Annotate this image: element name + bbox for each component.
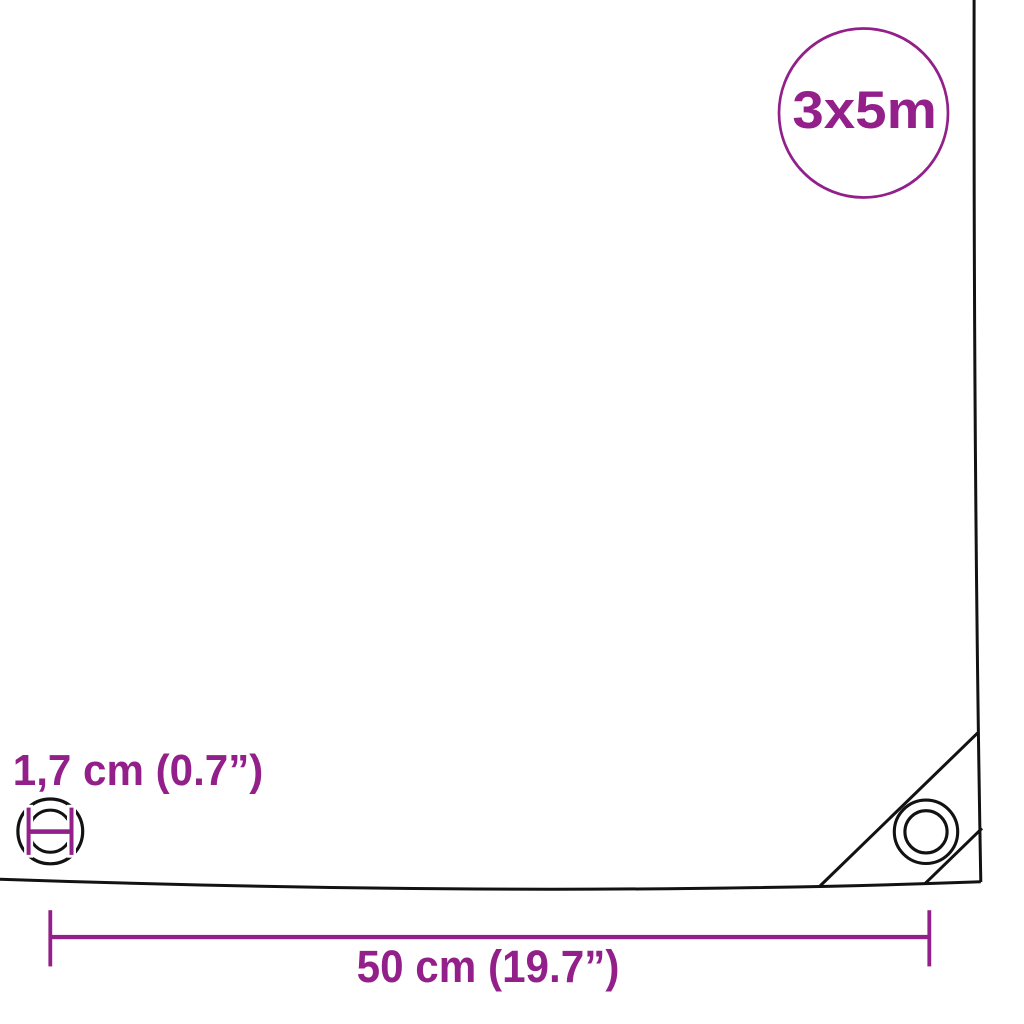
svg-text:50 cm (19.7”): 50 cm (19.7”) — [357, 941, 620, 992]
svg-text:1,7 cm (0.7”): 1,7 cm (0.7”) — [13, 746, 263, 795]
svg-text:3x5m: 3x5m — [792, 81, 937, 140]
